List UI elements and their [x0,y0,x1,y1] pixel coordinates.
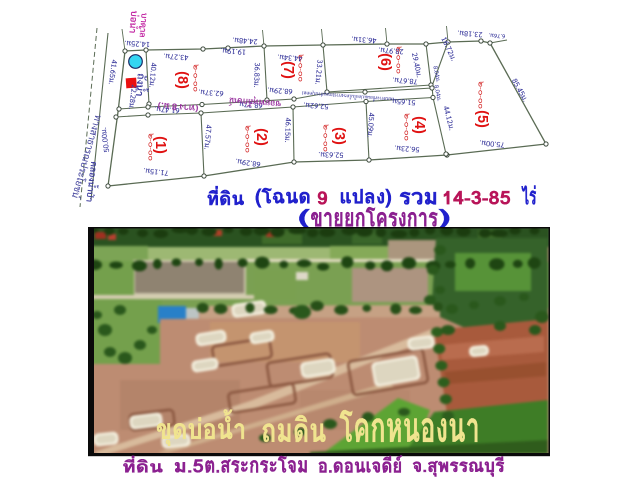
svg-text:(2): (2) [253,128,269,146]
svg-text:(5): (5) [474,110,490,128]
svg-text:(6): (6) [377,53,393,71]
svg-text:(7): (7) [280,61,296,79]
svg-text:(8): (8) [174,71,190,89]
svg-text:(3): (3) [331,127,347,145]
svg-text:(4): (4) [411,116,427,134]
svg-text:(1): (1) [152,136,168,154]
